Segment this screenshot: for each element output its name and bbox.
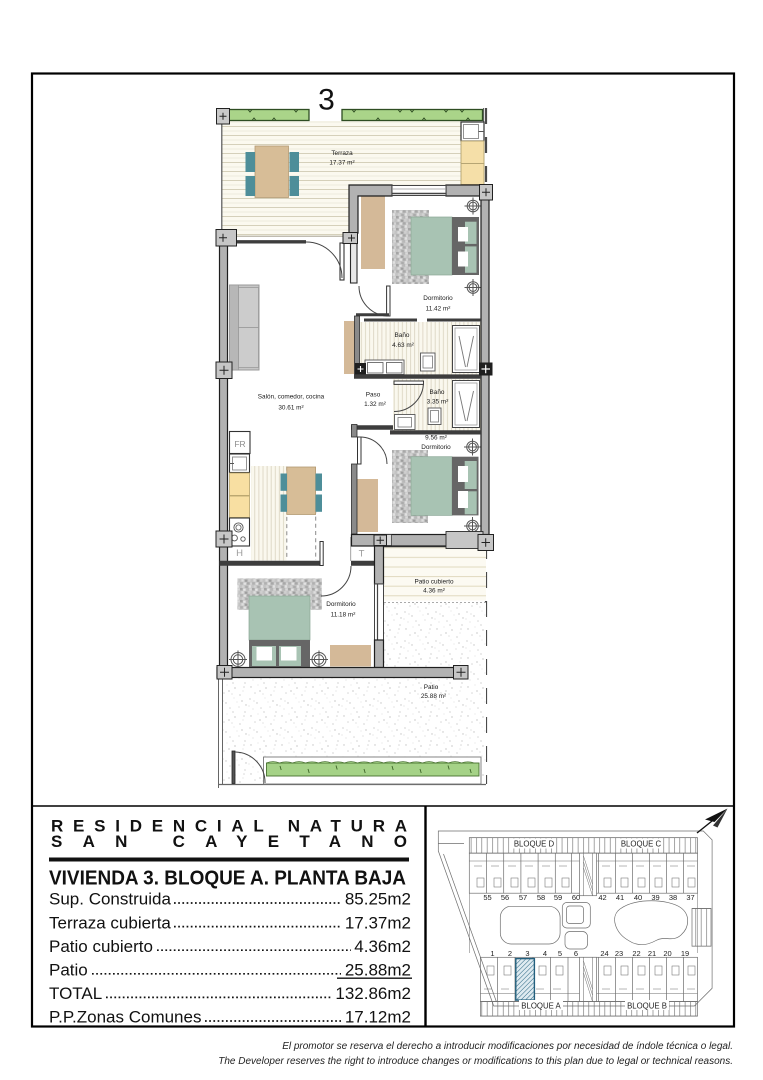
svg-text:20: 20 <box>663 949 671 958</box>
svg-text:Sup. Construida: Sup. Construida <box>49 890 171 909</box>
svg-text:2: 2 <box>508 949 512 958</box>
svg-text:41: 41 <box>616 893 624 902</box>
svg-text:85.25m2: 85.25m2 <box>345 890 411 909</box>
svg-text:BLOQUE A: BLOQUE A <box>521 1002 561 1011</box>
svg-text:58: 58 <box>537 893 545 902</box>
svg-text:56: 56 <box>501 893 509 902</box>
svg-text:Salón, comedor, cocina: Salón, comedor, cocina <box>258 394 325 401</box>
svg-text:40: 40 <box>634 893 642 902</box>
svg-text:Patio cubierto: Patio cubierto <box>414 579 454 586</box>
svg-text:FR: FR <box>234 439 245 449</box>
svg-text:1: 1 <box>490 949 494 958</box>
svg-text:Dormitorio: Dormitorio <box>423 295 453 302</box>
svg-text:BLOQUE B: BLOQUE B <box>627 1002 667 1011</box>
svg-text:4: 4 <box>543 949 547 958</box>
svg-text:Baño: Baño <box>430 389 445 396</box>
svg-text:P.P.Zonas Comunes: P.P.Zonas Comunes <box>49 1008 201 1027</box>
svg-text:17.12m2: 17.12m2 <box>345 1008 411 1027</box>
svg-text:Patio: Patio <box>49 961 88 980</box>
svg-text:The Developer reserves the rig: The Developer reserves the right to intr… <box>218 1056 733 1067</box>
svg-text:57: 57 <box>519 893 527 902</box>
svg-text:BLOQUE C: BLOQUE C <box>621 840 662 849</box>
svg-text:3: 3 <box>318 84 335 117</box>
svg-text:3: 3 <box>525 949 529 958</box>
svg-text:BLOQUE D: BLOQUE D <box>514 840 555 849</box>
svg-text:42: 42 <box>598 893 606 902</box>
svg-text:11.18 m²: 11.18 m² <box>331 612 356 619</box>
svg-text:55: 55 <box>483 893 491 902</box>
svg-text:25.88m2: 25.88m2 <box>345 961 411 980</box>
svg-text:21: 21 <box>648 949 656 958</box>
svg-text:30.61 m²: 30.61 m² <box>278 405 303 412</box>
svg-text:TOTAL: TOTAL <box>49 984 102 1003</box>
svg-text:17.37 m²: 17.37 m² <box>329 160 354 167</box>
svg-text:6: 6 <box>574 949 578 958</box>
svg-text:Baño: Baño <box>395 332 410 339</box>
svg-text:5: 5 <box>558 949 562 958</box>
svg-text:11.42 m²: 11.42 m² <box>426 306 451 313</box>
svg-text:1.32 m²: 1.32 m² <box>364 401 386 408</box>
svg-text:4.36 m²: 4.36 m² <box>423 588 445 595</box>
svg-text:Terraza: Terraza <box>331 150 353 157</box>
svg-text:4.63 m²: 4.63 m² <box>392 342 414 349</box>
svg-text:VIVIENDA 3. BLOQUE A. PLANTA B: VIVIENDA 3. BLOQUE A. PLANTA BAJA <box>49 868 406 890</box>
svg-text:24: 24 <box>600 949 608 958</box>
svg-text:37: 37 <box>686 893 694 902</box>
svg-text:25.88 m²: 25.88 m² <box>421 693 446 700</box>
svg-text:Patio: Patio <box>424 684 439 691</box>
svg-text:9.56 m²: 9.56 m² <box>425 435 447 442</box>
svg-text:132.86m2: 132.86m2 <box>335 984 411 1003</box>
svg-text:38: 38 <box>669 893 677 902</box>
svg-text:59: 59 <box>554 893 562 902</box>
svg-text:Dormitorio: Dormitorio <box>421 444 451 451</box>
svg-text:Dormitorio: Dormitorio <box>326 601 356 608</box>
svg-text:T: T <box>359 549 365 560</box>
svg-text:4.36m2: 4.36m2 <box>354 937 411 956</box>
svg-text:Patio cubierto: Patio cubierto <box>49 937 153 956</box>
svg-text:Terraza cubierta: Terraza cubierta <box>49 913 171 932</box>
svg-text:23: 23 <box>615 949 623 958</box>
svg-text:60: 60 <box>572 893 580 902</box>
svg-text:H: H <box>236 548 243 559</box>
svg-text:22: 22 <box>632 949 640 958</box>
svg-text:19: 19 <box>681 949 689 958</box>
svg-text:39: 39 <box>651 893 659 902</box>
svg-text:Paso: Paso <box>366 392 381 399</box>
svg-text:17.37m2: 17.37m2 <box>345 913 411 932</box>
svg-text:3.35 m²: 3.35 m² <box>427 399 449 406</box>
svg-text:El promotor se reserva el dere: El promotor se reserva el derecho a intr… <box>282 1041 733 1052</box>
